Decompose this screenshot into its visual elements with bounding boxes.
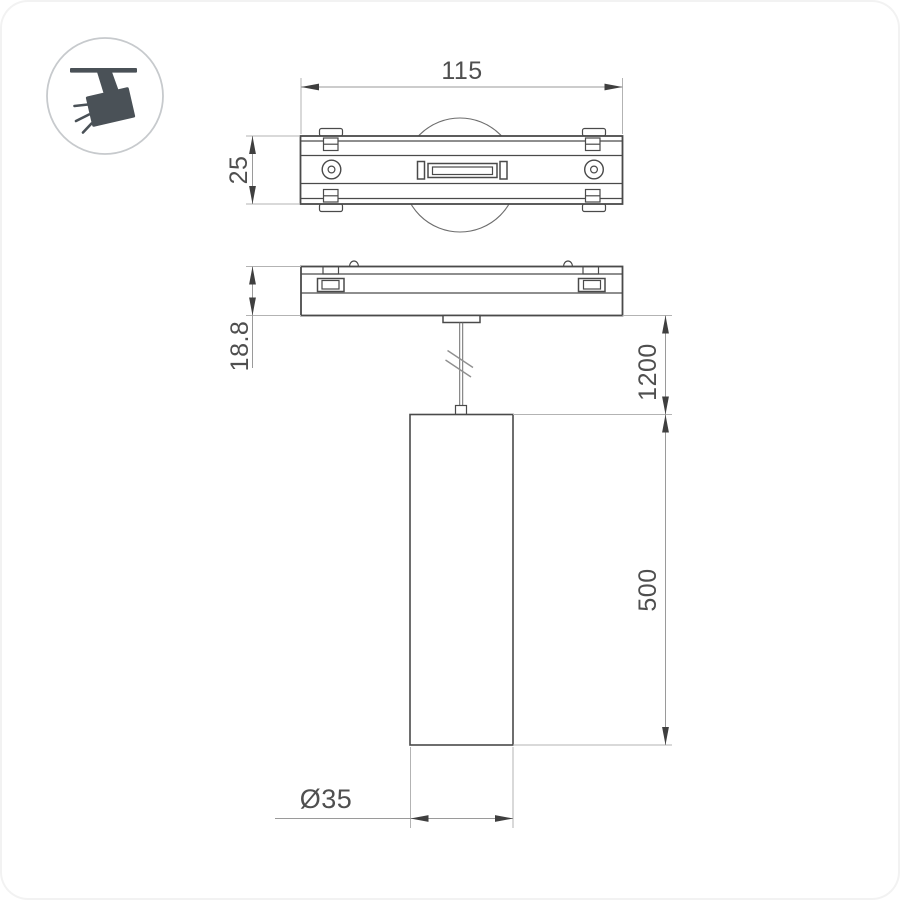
dim-label-adapter-depth: 25 [225, 156, 253, 185]
arrowhead [249, 186, 256, 204]
dim-lamp-diameter: Ø35 [275, 747, 513, 828]
arrowhead [662, 316, 669, 334]
arrowhead [662, 727, 669, 745]
dim-lamp-height: 500 [513, 415, 672, 746]
dim-label-lamp-height: 500 [634, 568, 662, 611]
arrowhead [662, 415, 669, 433]
drawing-canvas: 115 25 18.8 [0, 0, 900, 900]
cable-connector [456, 406, 467, 415]
arrowhead [495, 815, 513, 822]
dim-label-suspension-length: 1200 [634, 343, 662, 401]
cable-gland [443, 316, 480, 323]
dim-label-lamp-diameter: Ø35 [300, 784, 353, 814]
arrowhead [605, 84, 623, 91]
dim-adapter-width: 115 [301, 57, 623, 134]
arrowhead [411, 815, 429, 822]
mount-orientation-icon [47, 38, 163, 154]
dim-label-adapter-width: 115 [441, 57, 482, 85]
track-adapter-top-view [301, 118, 623, 232]
dim-adapter-height: 18.8 [226, 267, 301, 372]
ceiling-track-icon [70, 68, 137, 73]
dim-label-adapter-height: 18.8 [226, 321, 254, 372]
lamp-body-cylinder [410, 415, 513, 746]
dim-suspension-length: 1200 [513, 316, 672, 415]
arrowhead [301, 84, 319, 91]
connector-slot [418, 162, 508, 180]
suspension-cable [443, 316, 480, 415]
arrowhead [662, 397, 669, 415]
arrowhead [249, 136, 256, 154]
luminaire-dimension-drawing: 115 25 18.8 [0, 0, 900, 900]
dim-adapter-depth: 25 [225, 136, 300, 204]
arrowhead [249, 298, 256, 316]
arrowhead [249, 267, 256, 285]
track-adapter-side-view [301, 261, 623, 316]
